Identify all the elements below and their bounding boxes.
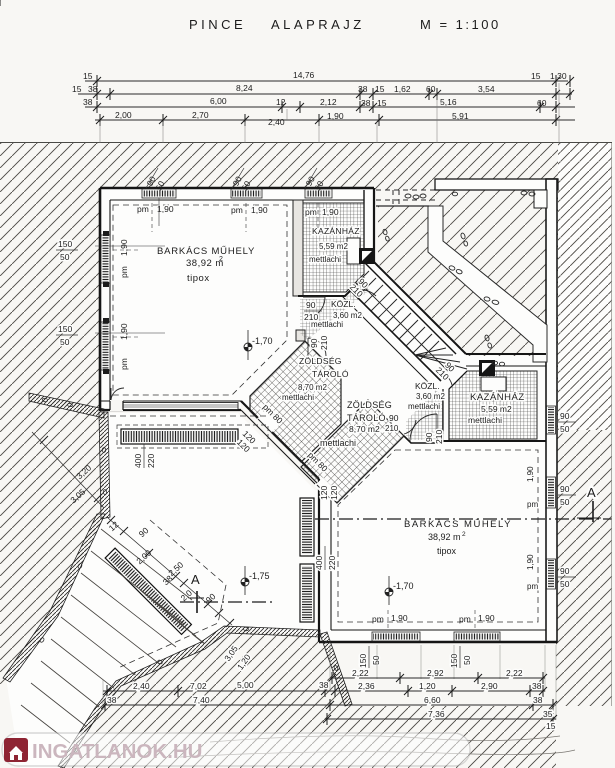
svg-text:2,90: 2,90 [481, 681, 498, 691]
svg-text:210: 210 [434, 430, 444, 444]
svg-text:15: 15 [377, 98, 387, 108]
svg-text:pm: pm [137, 204, 149, 214]
svg-text:3,54: 3,54 [478, 84, 495, 94]
svg-text:90: 90 [309, 338, 319, 348]
svg-text:ALAPRAJZ: ALAPRAJZ [271, 17, 365, 32]
svg-text:-1,70: -1,70 [252, 336, 273, 346]
svg-text:38: 38 [533, 695, 543, 705]
svg-text:220: 220 [146, 454, 156, 468]
svg-text:90: 90 [389, 413, 399, 423]
svg-text:15: 15 [531, 71, 541, 81]
svg-text:50: 50 [560, 497, 570, 507]
svg-text:pm: pm [527, 582, 538, 591]
svg-text:mettlachi: mettlachi [468, 415, 502, 425]
svg-text:60: 60 [537, 98, 547, 108]
svg-text:pm: pm [119, 358, 129, 370]
svg-text:50: 50 [560, 424, 570, 434]
svg-text:210: 210 [304, 312, 318, 322]
svg-text:1,30: 1,30 [550, 71, 567, 81]
svg-text:150: 150 [58, 239, 72, 249]
svg-text:PINCE: PINCE [189, 17, 246, 32]
svg-text:mettlachi: mettlachi [309, 255, 341, 264]
svg-text:2,12: 2,12 [320, 97, 337, 107]
svg-text:8,24: 8,24 [236, 83, 253, 93]
svg-text:pm: pm [459, 614, 471, 624]
svg-text:6,60: 6,60 [424, 695, 441, 705]
svg-text:2: 2 [462, 531, 466, 538]
svg-text:15: 15 [546, 721, 556, 731]
svg-text:1,90: 1,90 [157, 204, 174, 214]
svg-text:3,60 m2: 3,60 m2 [333, 311, 362, 320]
svg-text:90: 90 [424, 432, 434, 442]
svg-text:12: 12 [276, 97, 286, 107]
svg-text:1,90: 1,90 [251, 205, 268, 215]
svg-text:5,59 m2: 5,59 m2 [481, 404, 512, 414]
svg-text:tipox: tipox [187, 273, 210, 284]
svg-text:1,20: 1,20 [419, 681, 436, 691]
svg-text:KÖZL.: KÖZL. [415, 381, 440, 391]
svg-text:38: 38 [361, 98, 371, 108]
svg-text:50: 50 [560, 579, 570, 589]
svg-text:A: A [191, 572, 200, 587]
svg-text:1,62: 1,62 [394, 84, 411, 94]
svg-text:pm: pm [231, 205, 243, 215]
svg-text:5,59 m2: 5,59 m2 [319, 242, 348, 251]
svg-text:5,16: 5,16 [440, 97, 457, 107]
svg-text:2,40: 2,40 [268, 117, 285, 127]
svg-text:15: 15 [375, 84, 385, 94]
svg-text:14,76: 14,76 [293, 70, 315, 80]
svg-text:50: 50 [462, 655, 472, 665]
svg-text:2,70: 2,70 [192, 110, 209, 120]
svg-text:210: 210 [319, 336, 329, 350]
svg-text:220: 220 [327, 556, 337, 570]
svg-text:35: 35 [543, 709, 553, 719]
svg-text:90: 90 [560, 566, 570, 576]
svg-text:2: 2 [219, 256, 223, 263]
svg-text:KAZÁNHÁZ: KAZÁNHÁZ [470, 392, 525, 403]
svg-text:38: 38 [532, 681, 542, 691]
svg-text:2,22: 2,22 [506, 668, 523, 678]
svg-text:mettlachi: mettlachi [320, 438, 356, 448]
svg-text:50: 50 [60, 252, 70, 262]
svg-text:38: 38 [88, 84, 98, 94]
svg-text:KAZÁNHÁZ: KAZÁNHÁZ [312, 226, 360, 236]
svg-text:BARKÁCS MŰHELY: BARKÁCS MŰHELY [157, 246, 255, 257]
svg-text:pm: pm [527, 500, 538, 509]
svg-text:pm: pm [119, 266, 129, 278]
svg-text:400: 400 [314, 556, 324, 570]
svg-text:38: 38 [319, 680, 329, 690]
svg-text:5,00: 5,00 [237, 680, 254, 690]
svg-text:TÁROLÓ: TÁROLÓ [347, 413, 386, 423]
svg-text:150: 150 [358, 654, 368, 668]
svg-text:BARKÁCS MŰHELY: BARKÁCS MŰHELY [404, 519, 512, 530]
svg-text:90: 90 [560, 411, 570, 421]
svg-text:8,70 m2: 8,70 m2 [349, 424, 380, 434]
svg-text:2,40: 2,40 [133, 681, 150, 691]
svg-text:1,90: 1,90 [526, 554, 535, 570]
svg-text:-1,75: -1,75 [249, 571, 270, 581]
svg-text:90: 90 [306, 300, 316, 310]
svg-text:1,90: 1,90 [526, 466, 535, 482]
svg-text:120: 120 [319, 486, 329, 500]
svg-text:5,91: 5,91 [452, 111, 469, 121]
svg-text:400: 400 [133, 454, 143, 468]
svg-text:7,40: 7,40 [193, 695, 210, 705]
svg-text:38: 38 [107, 695, 117, 705]
svg-text:1,90: 1,90 [327, 111, 344, 121]
svg-text:2,92: 2,92 [427, 668, 444, 678]
svg-text:-1,70: -1,70 [393, 581, 414, 591]
svg-text:50: 50 [60, 337, 70, 347]
svg-text:tipox: tipox [437, 546, 457, 556]
svg-text:pm: pm [372, 614, 384, 624]
svg-text:1,90: 1,90 [322, 207, 339, 217]
svg-text:mettlachi: mettlachi [282, 393, 314, 402]
svg-text:15: 15 [72, 84, 82, 94]
svg-text:INGATLANOK.HU: INGATLANOK.HU [32, 740, 202, 763]
svg-text:pm: pm [305, 207, 317, 217]
svg-text:ZÖLDSÉG: ZÖLDSÉG [299, 356, 342, 366]
svg-text:A: A [587, 485, 596, 500]
svg-text:3,60 m2: 3,60 m2 [416, 392, 445, 401]
svg-text:2,00: 2,00 [115, 110, 132, 120]
svg-text:6,00: 6,00 [210, 96, 227, 106]
svg-text:1,90: 1,90 [119, 323, 129, 340]
svg-text:1,90: 1,90 [391, 613, 408, 623]
svg-text:7,02: 7,02 [190, 681, 207, 691]
svg-text:38: 38 [358, 84, 368, 94]
svg-text:150: 150 [58, 324, 72, 334]
svg-text:TÁROLÓ: TÁROLÓ [312, 369, 349, 379]
svg-text:50: 50 [371, 655, 381, 665]
svg-text:7,36: 7,36 [428, 709, 445, 719]
svg-text:210: 210 [385, 424, 399, 433]
svg-text:2,36: 2,36 [358, 681, 375, 691]
svg-text:60: 60 [426, 84, 436, 94]
svg-text:1,90: 1,90 [478, 613, 495, 623]
svg-text:90: 90 [560, 484, 570, 494]
svg-text:M = 1:100: M = 1:100 [420, 17, 501, 32]
svg-text:15: 15 [83, 71, 93, 81]
svg-text:ZÖLDSÉG: ZÖLDSÉG [347, 400, 392, 410]
svg-text:120: 120 [329, 486, 339, 500]
svg-text:8,70 m2: 8,70 m2 [298, 383, 327, 392]
svg-text:1,90: 1,90 [119, 239, 129, 256]
svg-text:2,22: 2,22 [352, 668, 369, 678]
svg-text:KÖZL.: KÖZL. [331, 299, 356, 309]
svg-text:38: 38 [83, 97, 93, 107]
svg-text:38,92 m: 38,92 m [428, 532, 461, 542]
svg-text:mettlachi: mettlachi [408, 402, 440, 411]
